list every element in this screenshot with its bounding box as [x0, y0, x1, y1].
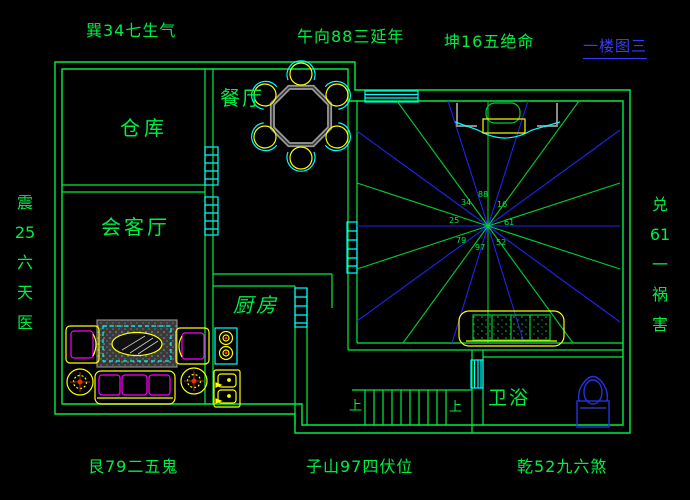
- room-label-bath: 卫浴: [488, 383, 530, 410]
- rug: [97, 320, 177, 367]
- label-qian: 乾52九六煞: [517, 453, 607, 477]
- room-label-storage: 仓库: [120, 112, 168, 141]
- side-table-left: [67, 369, 93, 395]
- side-table-right: [181, 368, 207, 394]
- stove: [215, 328, 237, 364]
- label-zishan: 子山97四伏位: [306, 453, 413, 477]
- compass-number-w: 25: [449, 217, 459, 225]
- room-label-living: 会客厅: [101, 211, 170, 240]
- window-storage: [205, 147, 218, 185]
- window-living: [205, 197, 218, 235]
- compass-number-se: 52: [496, 239, 506, 247]
- armchair-right: [176, 328, 209, 364]
- compass-number-ne: 16: [497, 201, 507, 209]
- window-kitchen: [295, 288, 307, 327]
- sofa: [95, 371, 175, 404]
- kitchen-fixtures: [214, 328, 240, 407]
- armchair-left: [66, 326, 99, 363]
- dining-table-set: [247, 61, 356, 171]
- compass-number-n: 88: [478, 191, 488, 199]
- compass-number-e: 61: [504, 219, 514, 227]
- room-label-kitchen: 厨房: [233, 289, 279, 318]
- living-room-furniture: [66, 320, 209, 404]
- sheet-title: 一楼图三: [583, 35, 647, 59]
- label-kun: 坤16五绝命: [444, 28, 534, 52]
- window-bath: [471, 360, 483, 388]
- staircase: [365, 390, 446, 425]
- floorplan-drawing: [0, 0, 690, 500]
- compass-number-sw: 79: [456, 237, 466, 245]
- label-gen: 艮79二五鬼: [88, 453, 178, 477]
- sink: [214, 370, 240, 407]
- label-wu-facing: 午向88三延年: [297, 23, 404, 47]
- label-xun-northeast: 巽34七生气: [86, 17, 176, 41]
- cad-floorplan-canvas[interactable]: 巽34七生气 午向88三延年 坤16五绝命 一楼图三 艮79二五鬼 子山97四伏…: [0, 0, 690, 500]
- stairs-up-label-left: 上: [349, 395, 362, 414]
- compass-rays: [357, 101, 620, 343]
- toilet-icon: [577, 377, 609, 428]
- counter-unit: [455, 103, 560, 138]
- bigroom-sofa: [459, 311, 564, 346]
- room-label-dining: 餐厅: [220, 82, 264, 111]
- label-dui-vertical: 兑 61 一 祸 害: [645, 190, 675, 340]
- label-zhen-vertical: 震 25 六 天 医: [10, 188, 40, 338]
- compass-number-nw: 34: [461, 199, 471, 207]
- compass-number-s: 97: [475, 244, 485, 252]
- stairs-up-label-right: 上: [449, 396, 462, 415]
